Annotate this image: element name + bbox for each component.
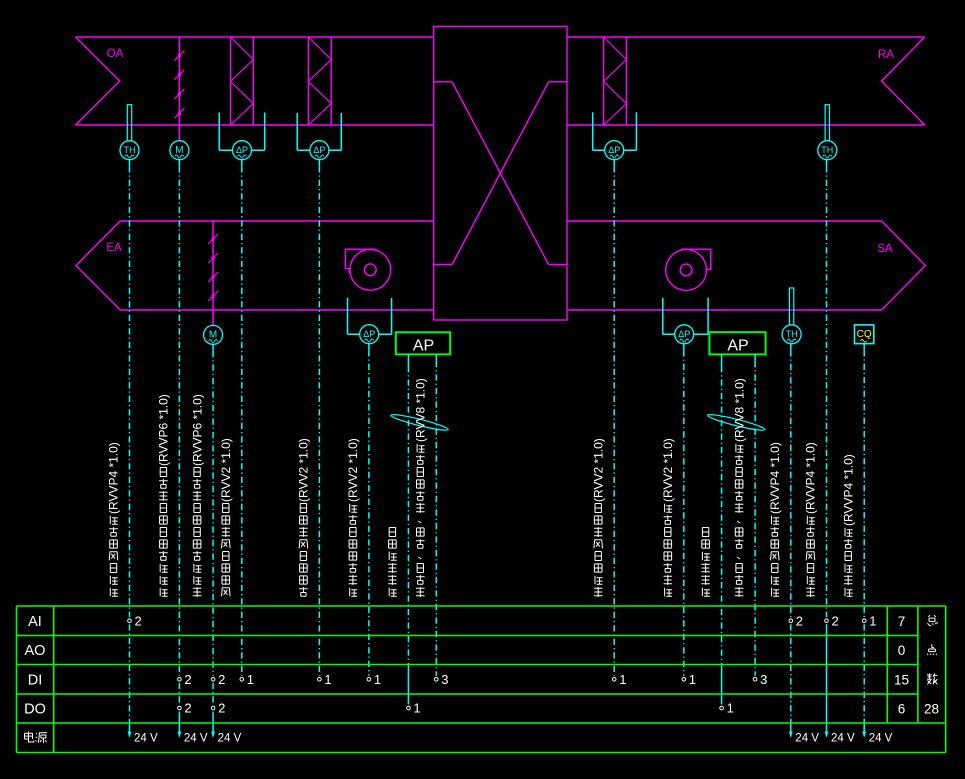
svg-text:(RVV2 *1.0): (RVV2 *1.0): [661, 438, 675, 502]
svg-text:AP: AP: [413, 338, 434, 355]
svg-text:1: 1: [324, 672, 331, 687]
svg-text:CQ: CQ: [857, 329, 872, 340]
svg-text:AO: AO: [25, 643, 46, 659]
svg-text:2: 2: [218, 701, 225, 716]
svg-text:(RVV2 *1.0): (RVV2 *1.0): [591, 438, 605, 502]
svg-text:(RVVP4 *1.0): (RVVP4 *1.0): [841, 454, 855, 526]
svg-text:ΔP: ΔP: [678, 329, 690, 339]
svg-text:1: 1: [374, 672, 381, 687]
svg-text:ΔP: ΔP: [363, 329, 375, 339]
svg-text:2: 2: [218, 672, 225, 687]
svg-text:DO: DO: [24, 702, 46, 718]
svg-text:1: 1: [247, 672, 254, 687]
svg-text:24 V: 24 V: [134, 733, 158, 745]
svg-text:M: M: [209, 330, 217, 341]
svg-text:(RVV2 *1.0): (RVV2 *1.0): [297, 438, 311, 502]
svg-text:M: M: [175, 145, 183, 156]
svg-text:2: 2: [796, 613, 803, 628]
svg-text:ΔP: ΔP: [236, 145, 248, 155]
svg-text:SA: SA: [877, 243, 893, 255]
svg-text:1: 1: [869, 613, 876, 628]
svg-text:AP: AP: [727, 338, 748, 355]
svg-text:(RVVP4 *1.0): (RVVP4 *1.0): [768, 442, 782, 514]
svg-text:TH: TH: [124, 145, 136, 155]
svg-text:ΔP: ΔP: [313, 145, 325, 155]
svg-text:24 V: 24 V: [218, 733, 242, 745]
svg-text:(RVV2 *1.0): (RVV2 *1.0): [219, 438, 233, 502]
svg-text:2: 2: [184, 701, 191, 716]
svg-text:(RVV8 *1.0): (RVV8 *1.0): [414, 378, 428, 442]
svg-text:(RVVP6 *1.0): (RVVP6 *1.0): [190, 394, 204, 466]
svg-text:24 V: 24 V: [869, 733, 893, 745]
svg-text:AI: AI: [28, 614, 42, 630]
svg-text:1: 1: [619, 672, 626, 687]
svg-text:1: 1: [689, 672, 696, 687]
svg-text:24 V: 24 V: [795, 733, 819, 745]
svg-text:EA: EA: [106, 242, 122, 254]
svg-text:DI: DI: [28, 672, 43, 688]
svg-text:(RVVP4 *1.0): (RVVP4 *1.0): [107, 442, 121, 514]
svg-text:TH: TH: [821, 145, 833, 155]
svg-text:15: 15: [894, 672, 909, 687]
svg-text:3: 3: [441, 672, 448, 687]
svg-text:1: 1: [413, 701, 420, 716]
svg-text:7: 7: [898, 614, 906, 629]
svg-text:(RVV8 *1.0): (RVV8 *1.0): [732, 378, 746, 442]
svg-text:1: 1: [727, 701, 734, 716]
svg-text:24 V: 24 V: [831, 733, 855, 745]
svg-text:6: 6: [898, 702, 906, 717]
svg-text:0: 0: [898, 643, 906, 658]
svg-text:ΔP: ΔP: [608, 145, 620, 155]
svg-text:(RVVP6 *1.0): (RVVP6 *1.0): [157, 394, 171, 466]
svg-text:OA: OA: [107, 48, 124, 60]
svg-text:(RVV2 *1.0): (RVV2 *1.0): [346, 438, 360, 502]
svg-text:24 V: 24 V: [184, 733, 208, 745]
svg-text:28: 28: [924, 702, 939, 717]
svg-text:(RVVP4 *1.0): (RVVP4 *1.0): [804, 442, 818, 514]
svg-text:2: 2: [135, 613, 142, 628]
svg-text:3: 3: [760, 672, 767, 687]
svg-text:TH: TH: [786, 329, 798, 339]
svg-text:2: 2: [832, 613, 839, 628]
svg-text:2: 2: [184, 672, 191, 687]
svg-text:RA: RA: [878, 49, 894, 61]
